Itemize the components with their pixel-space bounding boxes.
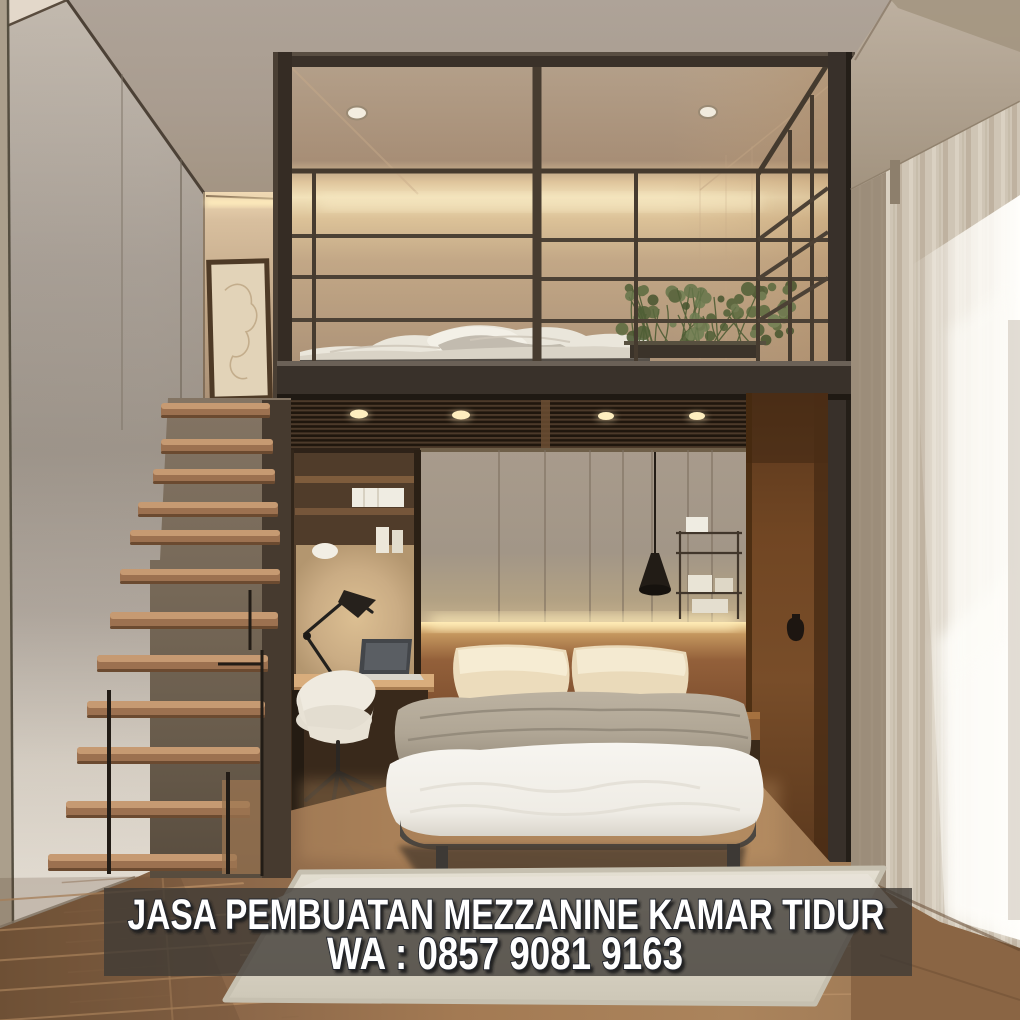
svg-text:WA : 0857 9081 9163: WA : 0857 9081 9163: [327, 928, 683, 979]
